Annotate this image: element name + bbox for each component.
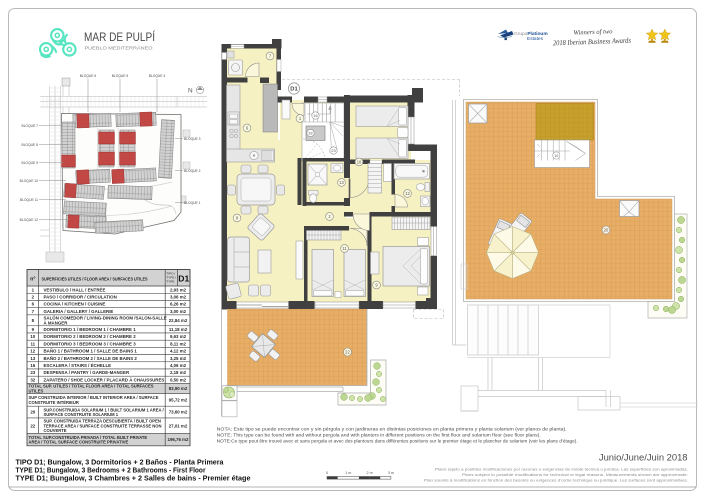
svg-text:D1: D1: [290, 87, 298, 93]
svg-text:COCINA / KITCHEN / CUISINE: COCINA / KITCHEN / CUISINE: [44, 302, 106, 307]
svg-text:TYPE D1; Bungalow, 3 Chambres: TYPE D1; Bungalow, 3 Chambres + 2 Salles…: [16, 476, 251, 483]
svg-text:GALERIA / GALLERY / GALLERIE: GALERIA / GALLERY / GALLERIE: [44, 309, 114, 314]
svg-text:8,11 m2: 8,11 m2: [170, 341, 186, 346]
svg-text:12: 12: [30, 349, 35, 354]
svg-text:Estates: Estates: [527, 36, 544, 42]
svg-text:AREA / TOTAL SURFACE CONSTRUIT: AREA / TOTAL SURFACE CONSTRUITE PRIVATIV…: [29, 440, 129, 445]
svg-text:BLOQUE 10: BLOQUE 10: [20, 179, 38, 183]
svg-text:13: 13: [339, 180, 344, 185]
svg-text:N: N: [188, 88, 193, 95]
svg-text:Junio/June/Juin 2018: Junio/June/Juin 2018: [599, 452, 688, 463]
svg-text:73,60 m2: 73,60 m2: [169, 410, 188, 415]
svg-text:16: 16: [30, 363, 35, 368]
svg-text:32: 32: [30, 377, 35, 382]
svg-text:PUEBLO MEDITERRÁNEO: PUEBLO MEDITERRÁNEO: [85, 46, 154, 51]
svg-text:0,50 m2: 0,50 m2: [170, 377, 187, 382]
svg-text:20: 20: [604, 228, 609, 233]
svg-text:ZAPATERO / SHOE LOCKER / PLACA: ZAPATERO / SHOE LOCKER / PLACARD À CHAUS…: [44, 377, 165, 382]
svg-text:32: 32: [308, 131, 313, 136]
svg-text:ESCALERA / STAIRS / ÉCHELLE: ESCALERA / STAIRS / ÉCHELLE: [44, 363, 112, 368]
svg-text:11,18 m2: 11,18 m2: [169, 327, 188, 332]
svg-text:27,01 m2: 27,01 m2: [169, 423, 188, 428]
svg-text:PASO / CORRIDOR / CIRCULATION: PASO / CORRIDOR / CIRCULATION: [44, 295, 117, 300]
svg-text:BLOQUE 9: BLOQUE 9: [22, 161, 39, 165]
svg-text:23: 23: [30, 370, 35, 375]
svg-text:20: 20: [30, 410, 35, 415]
svg-text:11: 11: [342, 246, 347, 251]
svg-text:À MANGER: À MANGER: [44, 321, 69, 326]
svg-text:DORMITORIO 1 / BEDROOM 1 / CHA: DORMITORIO 1 / BEDROOM 1 / CHAMBRE 1: [44, 327, 137, 332]
svg-text:2 m: 2 m: [367, 471, 373, 475]
svg-text:13: 13: [30, 356, 35, 361]
svg-text:0: 0: [326, 471, 328, 475]
svg-text:4,12 m2: 4,12 m2: [170, 349, 187, 354]
svg-text:3 m: 3 m: [388, 471, 394, 475]
svg-text:11: 11: [30, 341, 35, 346]
svg-text:TOTAL SUP. UTILES / TOTAL FLOO: TOTAL SUP. UTILES / TOTAL FLOOR AREA / T…: [29, 384, 154, 389]
svg-text:95,72 m2: 95,72 m2: [169, 398, 188, 403]
svg-text:Plan soumis à modifications en: Plan soumis à modifications en fonction …: [424, 477, 688, 482]
svg-text:2,18 m2: 2,18 m2: [170, 370, 187, 375]
svg-text:TYPE: TYPE: [166, 280, 174, 284]
svg-text:10: 10: [30, 334, 35, 339]
svg-text:MAR DE PULPÍ: MAR DE PULPÍ: [84, 29, 156, 44]
svg-text:BLOQUE 1: BLOQUE 1: [184, 201, 201, 205]
svg-text:1 m: 1 m: [345, 471, 351, 475]
svg-text:BAÑO 2 / BATHROOM 2 / SALLE DE: BAÑO 2 / BATHROOM 2 / SALLE DE BAINS 2: [44, 356, 138, 361]
svg-text:Plano sujeto a posibles modifi: Plano sujeto a posibles modificaciones p…: [435, 466, 688, 471]
svg-text:83,90 m2: 83,90 m2: [169, 386, 188, 391]
svg-text:SURFACE CONSTRUITE SOLARIUM 1: SURFACE CONSTRUITE SOLARIUM 1: [44, 412, 119, 417]
svg-text:22,84 m2: 22,84 m2: [169, 318, 188, 323]
svg-text:22: 22: [345, 350, 350, 355]
svg-text:BLOQUE 4: BLOQUE 4: [149, 74, 166, 78]
svg-text:COUVERTE: COUVERTE: [44, 428, 67, 433]
svg-text:BLOQUE 8: BLOQUE 8: [22, 143, 39, 147]
svg-text:BLOQUE 12: BLOQUE 12: [20, 218, 38, 222]
svg-text:D1: D1: [178, 274, 189, 284]
svg-text:BLOQUE 7: BLOQUE 7: [22, 124, 39, 128]
svg-text:4,06 m2: 4,06 m2: [170, 363, 187, 368]
svg-text:Winners of two: Winners of two: [573, 28, 613, 36]
svg-text:BLOQUE 2: BLOQUE 2: [184, 169, 201, 173]
svg-text:12: 12: [405, 191, 410, 196]
svg-text:23: 23: [331, 148, 336, 153]
svg-text:BLOQUE 6: BLOQUE 6: [80, 74, 97, 78]
svg-text:10: 10: [357, 160, 362, 165]
svg-text:DORMITORIO 3 / BEDROOM 3 / CHA: DORMITORIO 3 / BEDROOM 3 / CHAMBRE 3: [44, 341, 137, 346]
svg-text:6,26 m2: 6,26 m2: [170, 302, 187, 307]
svg-text:BLOQUE 5: BLOQUE 5: [112, 74, 129, 78]
svg-text:UTILES: UTILES: [29, 389, 44, 394]
svg-text:9,63 m2: 9,63 m2: [170, 334, 187, 339]
svg-text:n°: n°: [30, 277, 35, 283]
svg-text:BAÑO 1 / BATHROOM 1 / SALLE DE: BAÑO 1 / BATHROOM 1 / SALLE DE BAINS 1: [44, 349, 138, 354]
svg-text:3,06 m2: 3,06 m2: [170, 295, 187, 300]
svg-text:3,25 m2: 3,25 m2: [170, 356, 187, 361]
svg-text:TYPE D1; Bungalow, 3 Bedrooms: TYPE D1; Bungalow, 3 Bedrooms + 2 Bathro…: [16, 468, 206, 475]
svg-text:196,76 m2: 196,76 m2: [168, 437, 190, 442]
svg-text:BLOQUE 11: BLOQUE 11: [20, 198, 38, 202]
svg-text:2,93 m2: 2,93 m2: [170, 287, 187, 292]
svg-text:VESTIBULO / HALL / ENTRÉE: VESTIBULO / HALL / ENTRÉE: [44, 287, 106, 292]
svg-text:NOTE: This type can be found w: NOTE: This type can be found with and wi…: [217, 433, 541, 438]
svg-text:22: 22: [30, 423, 35, 428]
svg-text:16: 16: [313, 113, 318, 118]
svg-text:TIPO D1; Bungalow, 3 Dormitori: TIPO D1; Bungalow, 3 Dormitorios + 2 Bañ…: [16, 460, 224, 467]
svg-text:16: 16: [554, 154, 558, 158]
svg-text:3,00 m2: 3,00 m2: [170, 309, 187, 314]
svg-text:NOTA: Este tipo se puede encon: NOTA: Este tipo se puede encontrar con y…: [217, 427, 567, 432]
svg-text:NOTE:Ce type peut être trouvé: NOTE:Ce type peut être trouvé avec et sa…: [217, 439, 578, 444]
svg-text:Plans subject to possible modi: Plans subject to possible modifications …: [462, 472, 688, 477]
svg-text:DORMITORIO 2 / BEDROOM 2 / CHA: DORMITORIO 2 / BEDROOM 2 / CHAMBRE 2: [44, 334, 137, 339]
svg-text:DESPENSA / PANTRY / GARDE-MANG: DESPENSA / PANTRY / GARDE-MANGER: [44, 370, 130, 375]
svg-text:BLOQUE 3: BLOQUE 3: [184, 137, 201, 141]
svg-text:CONSTRUITE INTÉRIEUR: CONSTRUITE INTÉRIEUR: [29, 400, 79, 405]
svg-text:SUPERFICIES UTILES / FLOOR ARE: SUPERFICIES UTILES / FLOOR AREA / SURFAC…: [42, 276, 148, 281]
